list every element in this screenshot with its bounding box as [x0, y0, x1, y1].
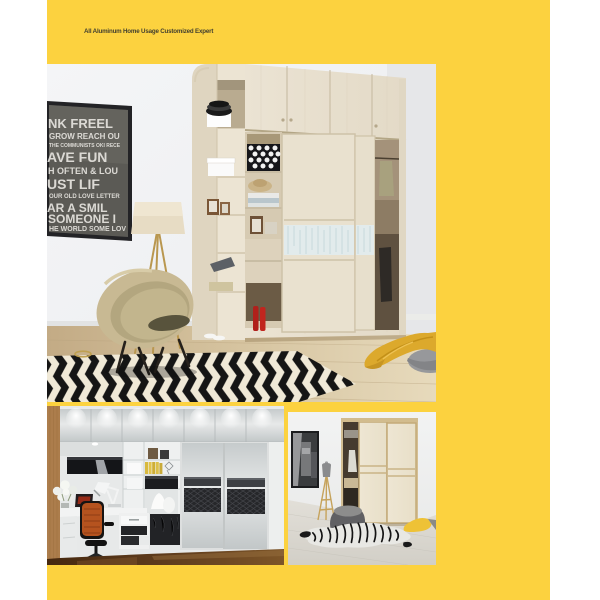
svg-text:GROW REACH OU: GROW REACH OU: [49, 132, 120, 141]
svg-text:NK FREEL: NK FREEL: [48, 116, 113, 131]
svg-text:UST LIF: UST LIF: [47, 176, 100, 192]
svg-text:SOMEONE I: SOMEONE I: [48, 212, 116, 226]
svg-text:OUR OLD LOVE LETTER: OUR OLD LOVE LETTER: [49, 194, 120, 200]
svg-text:AVE FUN: AVE FUN: [47, 149, 107, 165]
svg-text:H OFTEN & LOU: H OFTEN & LOU: [48, 166, 118, 176]
svg-text:HE WORLD SOME LOV: HE WORLD SOME LOV: [49, 226, 126, 233]
